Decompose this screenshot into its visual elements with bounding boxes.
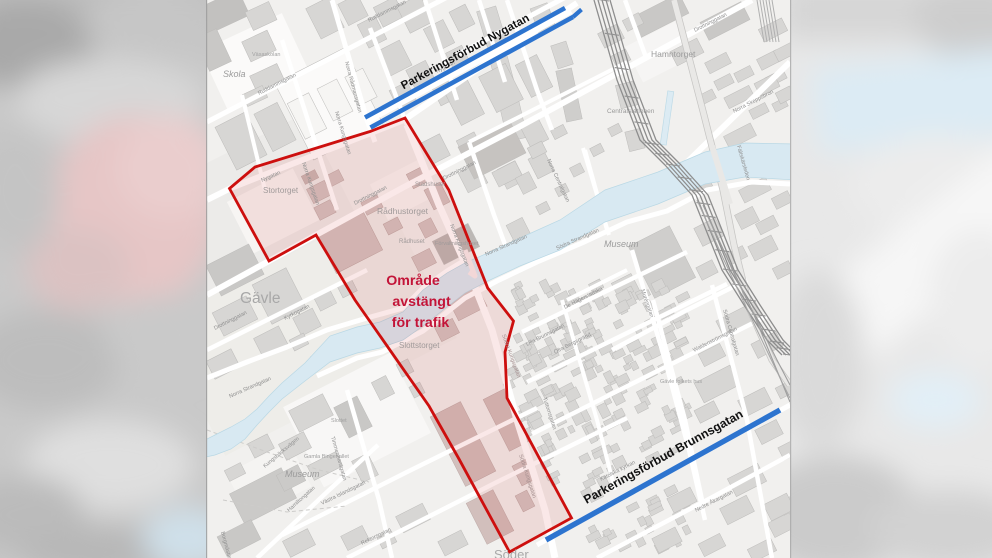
svg-text:för trafik: för trafik xyxy=(392,315,450,331)
svg-text:Centralstationen: Centralstationen xyxy=(607,108,655,115)
svg-text:avstängt: avstängt xyxy=(392,294,451,310)
svg-text:Område: Område xyxy=(386,273,440,289)
svg-text:Rådhuset: Rådhuset xyxy=(399,238,425,245)
svg-text:Söder: Söder xyxy=(494,547,529,558)
svg-text:Slottet: Slottet xyxy=(331,418,347,424)
svg-text:Museum: Museum xyxy=(604,239,639,249)
svg-text:Gävle: Gävle xyxy=(240,290,281,307)
svg-text:Skola: Skola xyxy=(223,69,246,79)
svg-text:Väsaskolan: Väsaskolan xyxy=(252,52,280,58)
svg-text:Hamntorget: Hamntorget xyxy=(651,49,696,59)
svg-text:Stadshuset: Stadshuset xyxy=(415,182,445,188)
svg-text:Slottstorget: Slottstorget xyxy=(399,341,440,350)
svg-text:Gävle folkets hus: Gävle folkets hus xyxy=(660,379,702,385)
svg-text:Museum: Museum xyxy=(285,469,320,479)
svg-text:Gamla Bingehallet: Gamla Bingehallet xyxy=(304,454,349,460)
svg-text:Rådhustorget: Rådhustorget xyxy=(377,206,429,216)
svg-text:Stortorget: Stortorget xyxy=(263,186,299,195)
